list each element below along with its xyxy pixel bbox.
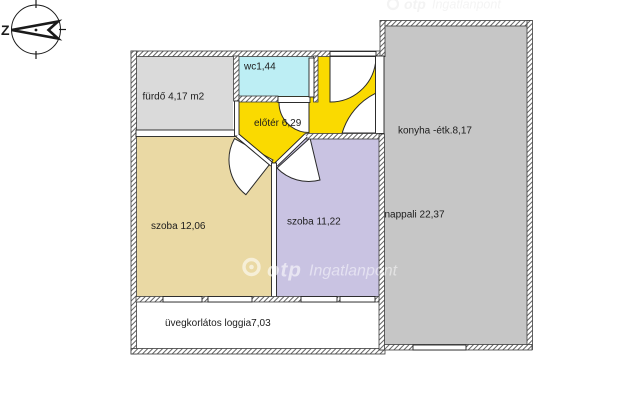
svg-text:otp: otp — [267, 259, 302, 282]
svg-text:Ingatlanpont: Ingatlanpont — [432, 0, 501, 12]
svg-text:nappali 22,37: nappali 22,37 — [385, 210, 445, 221]
svg-text:üvegkorlátos loggia7,03: üvegkorlátos loggia7,03 — [165, 318, 271, 329]
svg-text:Z: Z — [1, 22, 10, 38]
svg-text:előtér 6,29: előtér 6,29 — [254, 118, 302, 129]
svg-text:fürdő 4,17 m2: fürdő 4,17 m2 — [143, 92, 205, 103]
svg-text:wc1,44: wc1,44 — [243, 62, 276, 73]
svg-text:konyha -étk.8,17: konyha -étk.8,17 — [398, 126, 472, 137]
svg-text:Ingatlanpont: Ingatlanpont — [309, 263, 398, 280]
svg-text:otp: otp — [404, 0, 426, 12]
svg-text:szoba 11,22: szoba 11,22 — [287, 217, 341, 228]
svg-text:szoba 12,06: szoba 12,06 — [151, 221, 206, 232]
